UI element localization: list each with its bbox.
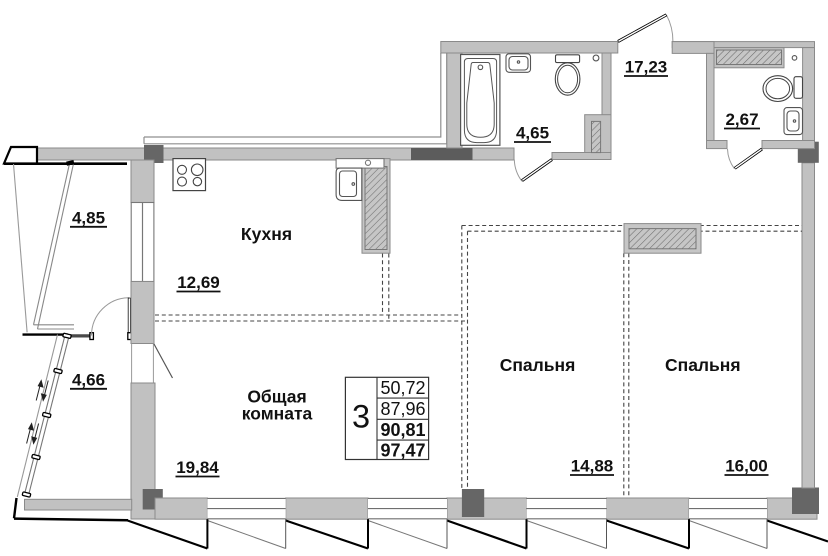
svg-text:3: 3 (352, 399, 370, 435)
svg-text:16,00: 16,00 (725, 457, 768, 476)
svg-text:50,72: 50,72 (380, 378, 425, 398)
svg-text:97,47: 97,47 (380, 440, 425, 460)
svg-text:4,85: 4,85 (72, 209, 105, 228)
svg-text:87,96: 87,96 (380, 399, 425, 419)
svg-text:90,81: 90,81 (380, 420, 425, 440)
svg-text:17,23: 17,23 (625, 58, 668, 77)
svg-text:Спальня: Спальня (665, 355, 741, 375)
svg-text:Кухня: Кухня (241, 224, 292, 244)
svg-text:4,65: 4,65 (516, 124, 549, 143)
svg-text:комната: комната (242, 404, 313, 424)
svg-text:12,69: 12,69 (177, 273, 220, 292)
svg-text:14,88: 14,88 (571, 457, 614, 476)
svg-text:19,84: 19,84 (176, 458, 219, 477)
svg-text:4,66: 4,66 (72, 371, 105, 390)
svg-text:Спальня: Спальня (500, 355, 576, 375)
svg-text:2,67: 2,67 (725, 110, 758, 129)
